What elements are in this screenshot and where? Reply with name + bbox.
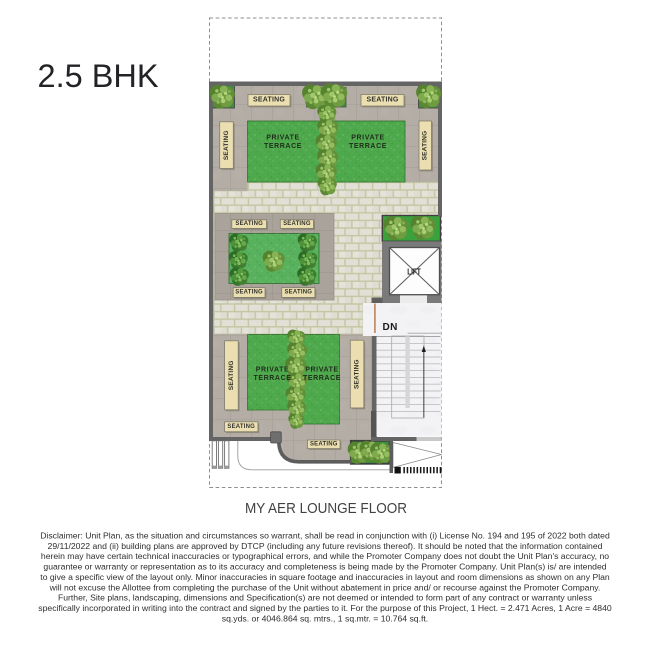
svg-text:2.5 BHK: 2.5 BHK bbox=[38, 58, 159, 94]
svg-text:PRIVATE: PRIVATE bbox=[256, 367, 290, 374]
svg-text:PRIVATE: PRIVATE bbox=[266, 135, 300, 142]
svg-text:SEATING: SEATING bbox=[422, 131, 429, 161]
svg-text:SEATING: SEATING bbox=[284, 290, 312, 296]
svg-text:SEATING: SEATING bbox=[228, 360, 235, 390]
svg-text:TERRACE: TERRACE bbox=[349, 143, 387, 150]
svg-text:will not excuse the Allottee f: will not excuse the Allottee from comple… bbox=[49, 582, 601, 592]
svg-text:SEATING: SEATING bbox=[283, 221, 311, 227]
svg-text:guarantee or warranty or repre: guarantee or warranty or representation … bbox=[43, 562, 606, 572]
svg-text:SEATING: SEATING bbox=[354, 359, 361, 389]
svg-text:TERRACE: TERRACE bbox=[253, 375, 291, 382]
svg-text:sq.yds. or 4046.864 sq. mtrs.,: sq.yds. or 4046.864 sq. mtrs., 1 sq.mtr.… bbox=[222, 613, 428, 623]
svg-text:SEATING: SEATING bbox=[367, 97, 399, 104]
svg-text:TERRACE: TERRACE bbox=[303, 375, 341, 382]
svg-text:PRIVATE: PRIVATE bbox=[305, 367, 339, 374]
svg-text:Disclaimer: Unit Plan, as the: Disclaimer: Unit Plan, as the situation … bbox=[40, 531, 610, 541]
svg-text:SEATING: SEATING bbox=[227, 424, 255, 430]
svg-text:DN: DN bbox=[383, 322, 398, 333]
svg-text:herein may have certain techni: herein may have certain technical inaccu… bbox=[41, 551, 609, 561]
svg-text:SEATING: SEATING bbox=[235, 221, 263, 227]
svg-text:PRIVATE: PRIVATE bbox=[351, 135, 385, 142]
svg-text:29/11/2022 and (ii) building p: 29/11/2022 and (ii) building plans are a… bbox=[48, 541, 603, 551]
svg-text:SEATING: SEATING bbox=[253, 97, 285, 104]
svg-text:specifically incorporated in w: specifically incorporated in writing int… bbox=[38, 603, 612, 613]
svg-text:MY AER LOUNGE FLOOR: MY AER LOUNGE FLOOR bbox=[245, 500, 407, 517]
svg-text:TERRACE: TERRACE bbox=[264, 143, 302, 150]
svg-text:LIFT: LIFT bbox=[407, 268, 421, 277]
svg-text:SEATING: SEATING bbox=[223, 130, 230, 160]
svg-text:SEATING: SEATING bbox=[235, 290, 263, 296]
svg-text:SEATING: SEATING bbox=[310, 441, 338, 447]
svg-text:to give a specific view of the: to give a specific view of the layout on… bbox=[40, 572, 610, 582]
svg-text:Further, Site plans, landscapi: Further, Site plans, landscaping, dimens… bbox=[58, 593, 592, 603]
